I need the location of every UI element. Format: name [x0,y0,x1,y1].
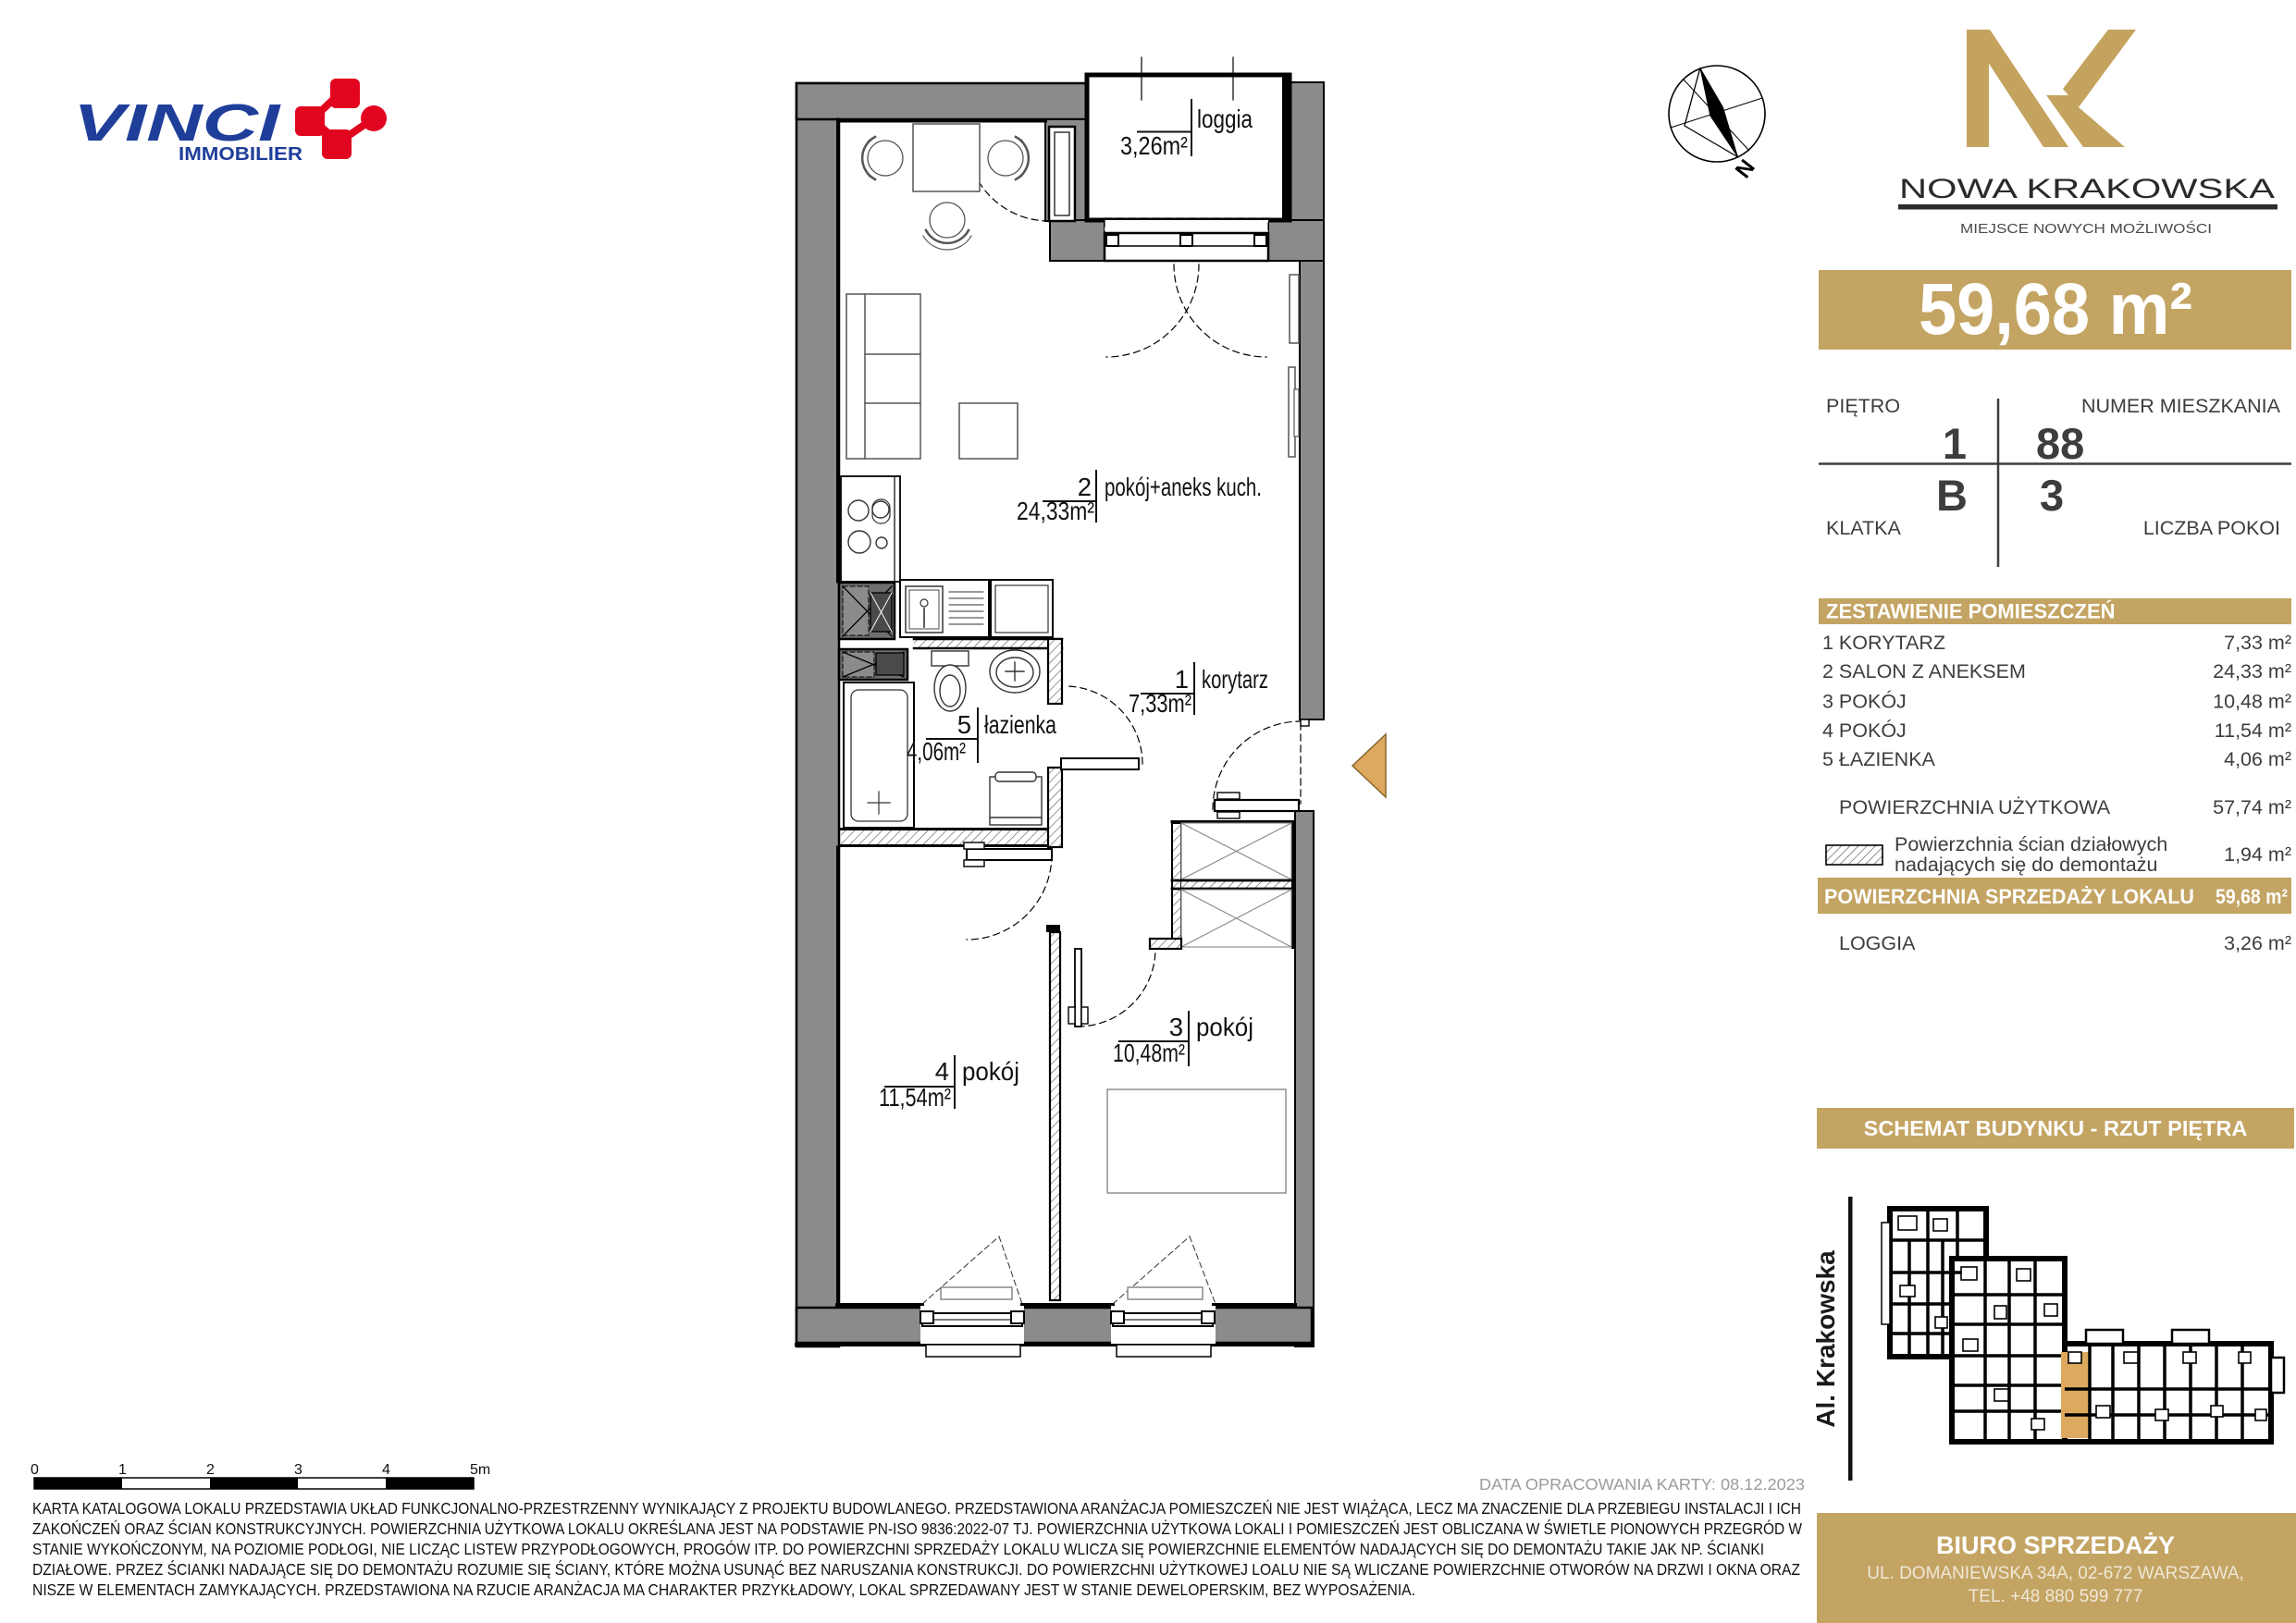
svg-text:4: 4 [935,1057,949,1086]
svg-text:4,06m²: 4,06m² [907,737,966,766]
svg-text:MIEJSCE NOWYCH MOŻLIWOŚCI: MIEJSCE NOWYCH MOŻLIWOŚCI [1960,220,2212,237]
svg-text:4: 4 [382,1462,390,1478]
svg-text:POWIERZCHNIA UŻYTKOWA: POWIERZCHNIA UŻYTKOWA [1839,796,2111,818]
svg-text:KARTA KATALOGOWA LOKALU PRZEDS: KARTA KATALOGOWA LOKALU PRZEDSTAWIA UKŁA… [32,1499,1801,1518]
svg-text:3,26m²: 3,26m² [1120,131,1188,160]
svg-text:24,33 m²: 24,33 m² [2213,660,2291,682]
svg-text:NUMER MIESZKANIA: NUMER MIESZKANIA [2081,395,2281,417]
svg-text:7,33 m²: 7,33 m² [2224,632,2291,654]
svg-text:88: 88 [2036,419,2084,468]
svg-text:11,54 m²: 11,54 m² [2215,719,2291,742]
svg-text:0: 0 [31,1462,39,1478]
svg-text:ZAKOŃCZEŃ ORAZ ŚCIAN KONSTRUKC: ZAKOŃCZEŃ ORAZ ŚCIAN KONSTRUKCYJNYCH. PO… [32,1519,1803,1538]
svg-text:2 SALON Z ANEKSEM: 2 SALON Z ANEKSEM [1822,660,2026,682]
svg-text:POWIERZCHNIA SPRZEDAŻY LOKALU: POWIERZCHNIA SPRZEDAŻY LOKALU [1824,885,2194,908]
svg-text:TEL. +48 880 599 777: TEL. +48 880 599 777 [1969,1587,2143,1606]
svg-text:DATA OPRACOWANIA KARTY: 08.12.: DATA OPRACOWANIA KARTY: 08.12.2023 [1479,1475,1805,1494]
svg-text:IMMOBILIER: IMMOBILIER [179,144,303,165]
svg-text:5: 5 [957,710,971,739]
svg-text:3: 3 [294,1462,302,1478]
svg-text:1: 1 [118,1462,127,1478]
svg-text:BIURO SPRZEDAŻY: BIURO SPRZEDAŻY [1936,1531,2175,1559]
svg-text:3: 3 [2040,471,2064,520]
svg-text:1,94 m²: 1,94 m² [2224,843,2291,866]
svg-text:pokój+aneks kuch.: pokój+aneks kuch. [1105,473,1262,501]
svg-text:4 POKÓJ: 4 POKÓJ [1822,719,1907,742]
svg-text:DZIAŁOWE. PRZEZ ŚCIANKI NADAJĄ: DZIAŁOWE. PRZEZ ŚCIANKI NADAJĄCE SIĘ DO … [32,1560,1800,1579]
svg-text:KLATKA: KLATKA [1826,517,1902,539]
svg-text:UL. DOMANIEWSKA 34A, 02-672 WA: UL. DOMANIEWSKA 34A, 02-672 WARSZAWA, [1867,1564,2244,1583]
svg-text:59,68 m²: 59,68 m² [1919,267,2192,350]
svg-text:59,68 m²: 59,68 m² [2216,885,2288,908]
svg-text:3: 3 [1169,1013,1183,1041]
svg-text:4,06 m²: 4,06 m² [2224,748,2291,770]
svg-text:10,48 m²: 10,48 m² [2213,691,2291,713]
svg-text:2: 2 [206,1462,215,1478]
svg-text:5m: 5m [470,1462,490,1478]
svg-text:1: 1 [1943,419,1967,468]
svg-text:5 ŁAZIENKA: 5 ŁAZIENKA [1822,748,1936,770]
svg-text:LOGGIA: LOGGIA [1839,932,1916,954]
svg-text:pokój: pokój [962,1057,1019,1086]
svg-text:10,48m²: 10,48m² [1113,1039,1185,1067]
svg-text:loggia: loggia [1197,105,1253,133]
svg-text:3,26 m²: 3,26 m² [2224,932,2291,954]
svg-text:STANIE WYKOŃCZONYM, NA POZIOMI: STANIE WYKOŃCZONYM, NA POZIOMIE PODŁOGI,… [32,1540,1764,1558]
svg-text:B: B [1936,471,1968,520]
svg-text:nadających się do demontażu: nadających się do demontażu [1895,854,2157,876]
svg-text:1 KORYTARZ: 1 KORYTARZ [1822,632,1945,654]
svg-text:SCHEMAT BUDYNKU - RZUT PIĘTRA: SCHEMAT BUDYNKU - RZUT PIĘTRA [1864,1116,2248,1140]
svg-text:pokój: pokój [1196,1013,1253,1041]
svg-text:Powierzchnia ścian działowych: Powierzchnia ścian działowych [1895,833,2167,855]
svg-text:korytarz: korytarz [1202,665,1268,694]
svg-text:57,74 m²: 57,74 m² [2213,796,2291,818]
svg-text:PIĘTRO: PIĘTRO [1826,395,1900,417]
svg-text:łazienka: łazienka [984,710,1057,739]
svg-text:LICZBA POKOI: LICZBA POKOI [2143,517,2280,539]
svg-text:NISZE W ELEMENTACH ZAMYKAJĄCYC: NISZE W ELEMENTACH ZAMYKAJĄCYCH. PRZEDST… [32,1580,1415,1599]
svg-text:Al. Krakowska: Al. Krakowska [1811,1250,1840,1428]
svg-text:NOWA KRAKOWSKA: NOWA KRAKOWSKA [1899,174,2275,204]
svg-text:3 POKÓJ: 3 POKÓJ [1822,690,1907,713]
svg-text:ZESTAWIENIE POMIESZCZEŃ: ZESTAWIENIE POMIESZCZEŃ [1826,600,2116,623]
